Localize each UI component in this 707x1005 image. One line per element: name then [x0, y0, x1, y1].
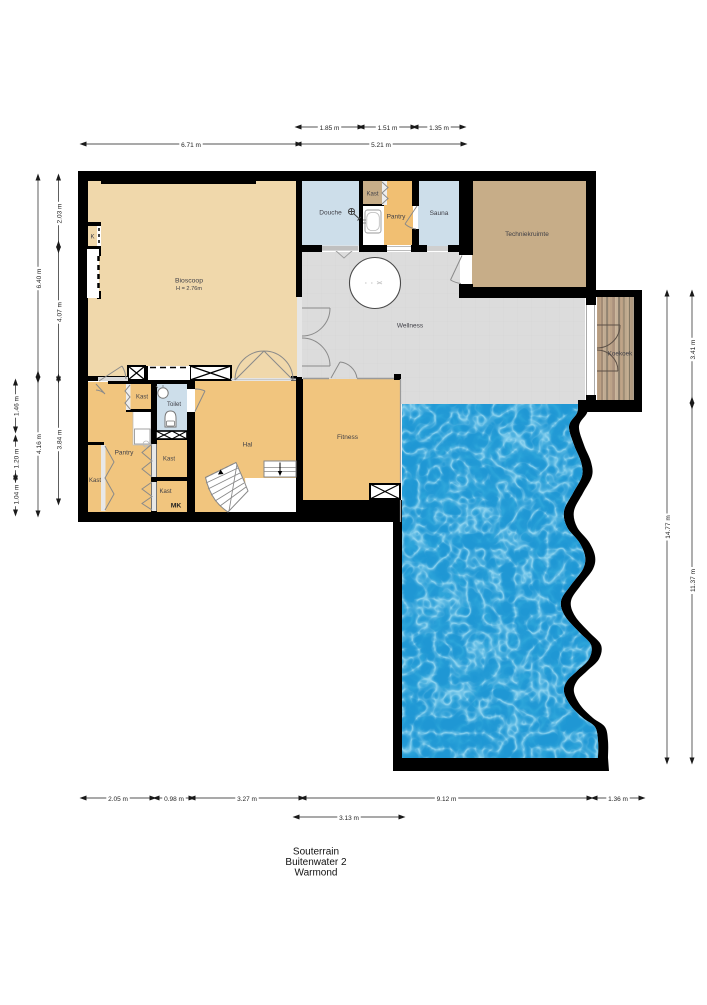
svg-text:9.12 m: 9.12 m [437, 796, 457, 803]
svg-text:3.84 m: 3.84 m [56, 430, 63, 450]
svg-text:1.36 m: 1.36 m [608, 796, 628, 803]
svg-text:Buitenwater 2: Buitenwater 2 [285, 857, 347, 868]
svg-text:Fitness: Fitness [337, 434, 359, 441]
svg-text:Toilet: Toilet [167, 402, 181, 408]
svg-text:14.77 m: 14.77 m [665, 515, 672, 539]
svg-text:Bioscoop: Bioscoop [175, 277, 203, 284]
svg-text:1.46 m: 1.46 m [13, 396, 20, 416]
svg-text:Kast: Kast [159, 489, 171, 495]
svg-text:Sauna: Sauna [430, 210, 449, 217]
svg-text:Koekoek: Koekoek [608, 350, 633, 357]
svg-text:Kast: Kast [89, 478, 101, 484]
svg-text:Techniekruimte: Techniekruimte [505, 231, 549, 238]
svg-text:MK: MK [171, 503, 182, 510]
svg-text:11.37 m: 11.37 m [690, 569, 697, 592]
svg-text:Pantry: Pantry [387, 213, 407, 220]
svg-text:Wellness: Wellness [397, 322, 424, 329]
svg-text:2.05 m: 2.05 m [108, 796, 128, 803]
svg-text:6.40 m: 6.40 m [36, 269, 43, 289]
svg-text:3.27 m: 3.27 m [237, 796, 257, 803]
svg-text:4.07 m: 4.07 m [56, 302, 63, 322]
svg-text:Souterrain: Souterrain [293, 847, 339, 858]
svg-text:Warmond: Warmond [295, 868, 338, 879]
svg-text:K: K [90, 234, 94, 240]
svg-text:1.20 m: 1.20 m [13, 449, 20, 469]
svg-text:Kast: Kast [366, 191, 378, 197]
svg-text:Douche: Douche [319, 209, 342, 216]
svg-text:0.98 m: 0.98 m [164, 796, 184, 803]
svg-text:Pantry: Pantry [115, 450, 135, 457]
svg-text:2.03 m: 2.03 m [56, 204, 63, 224]
svg-text:1.35 m: 1.35 m [429, 125, 449, 132]
svg-text:Hal: Hal [243, 442, 253, 449]
svg-text:4.16 m: 4.16 m [36, 434, 43, 454]
svg-text:Kast: Kast [163, 457, 175, 463]
svg-text:5.21 m: 5.21 m [371, 142, 391, 149]
svg-text:Kast: Kast [136, 395, 148, 401]
svg-text:6.71 m: 6.71 m [181, 142, 201, 149]
svg-text:1.85 m: 1.85 m [320, 125, 340, 132]
svg-text:3.41 m: 3.41 m [690, 340, 697, 360]
svg-text:H = 2.76m: H = 2.76m [176, 286, 202, 292]
svg-text:3.13 m: 3.13 m [339, 815, 359, 822]
svg-text:1.51 m: 1.51 m [378, 125, 398, 132]
svg-text:1.04 m: 1.04 m [13, 485, 20, 505]
